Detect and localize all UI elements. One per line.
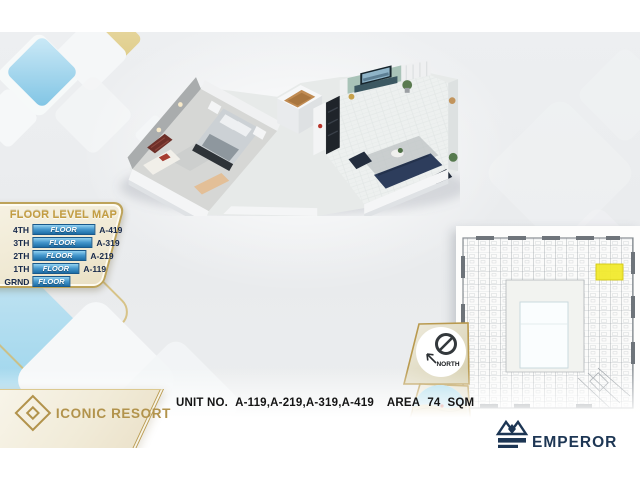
balcony-plant (449, 153, 458, 162)
gold-side-table (349, 94, 355, 100)
brand-plate: ICONIC RESORT (0, 389, 164, 448)
developer-logo: EMPEROR Developments (494, 419, 634, 448)
floor-bar: FLOOR (32, 224, 95, 235)
unit-numbers: A-119,A-219,A-319,A-419 (235, 397, 374, 409)
floor-unit-label: A-319 (92, 238, 119, 248)
kitchen-unit (326, 96, 340, 155)
kitchen-fridge (313, 103, 325, 156)
floor-level-label: 2TH (4, 251, 32, 261)
developer-name: EMPEROR (532, 434, 617, 448)
floor-level-label: 3TH (4, 238, 32, 248)
rattan-chair (449, 97, 456, 104)
highlighted-unit (596, 264, 623, 280)
area-value: 74 (427, 397, 440, 409)
north-label: NORTH (436, 361, 459, 368)
diamond-logo-icon (14, 395, 51, 432)
unit-info-line: UNIT NO.A-119,A-219,A-319,A-419AREA74SQM (176, 397, 481, 409)
floor-bar: FLOOR (32, 276, 70, 287)
coffee-machine (318, 124, 322, 128)
floor-bar: FLOOR (32, 263, 79, 274)
brochure-page: FLOOR LEVEL MAP 4TH FLOOR A-419 3TH FLOO… (0, 0, 640, 480)
floorplan-3d (108, 40, 460, 216)
tv-wall-panel (340, 78, 348, 96)
floor-row: GRND FLOOR (4, 276, 122, 287)
floor-row: 4TH FLOOR A-419 (4, 224, 122, 235)
crown-icon (498, 422, 526, 448)
floor-level-map: FLOOR LEVEL MAP 4TH FLOOR A-419 3TH FLOO… (0, 202, 126, 288)
brand-name: ICONIC RESORT (56, 406, 171, 421)
floor-level-label: 1TH (4, 264, 32, 274)
plant-pot (405, 88, 410, 93)
wall-lamp (156, 128, 161, 133)
floor-unit-label: A-219 (86, 251, 113, 261)
floor-bar: FLOOR (32, 237, 92, 248)
floor-row: 2TH FLOOR A-219 (4, 250, 122, 261)
floor-row: 1TH FLOOR A-119 (4, 263, 122, 274)
pool (520, 302, 568, 368)
unit-no-label: UNIT NO. (176, 397, 228, 409)
table-plant (398, 148, 403, 153)
bottom-white-band (0, 448, 640, 480)
wall-lamp (178, 102, 183, 107)
top-white-band (0, 0, 640, 32)
floor-level-label: GRND (4, 277, 32, 287)
floor-unit-label: A-419 (95, 225, 122, 235)
content-area: FLOOR LEVEL MAP 4TH FLOOR A-419 3TH FLOO… (0, 32, 640, 448)
floor-level-label: 4TH (4, 225, 32, 235)
compass-icon (437, 335, 456, 354)
floor-bar: FLOOR (32, 250, 86, 261)
area-label: AREA (387, 397, 420, 409)
floor-unit-label: A-119 (79, 264, 106, 274)
floor-level-map-title: FLOOR LEVEL MAP (4, 209, 122, 221)
balcony (448, 79, 458, 171)
area-unit: SQM (448, 397, 475, 409)
floor-row: 3TH FLOOR A-319 (4, 237, 122, 248)
